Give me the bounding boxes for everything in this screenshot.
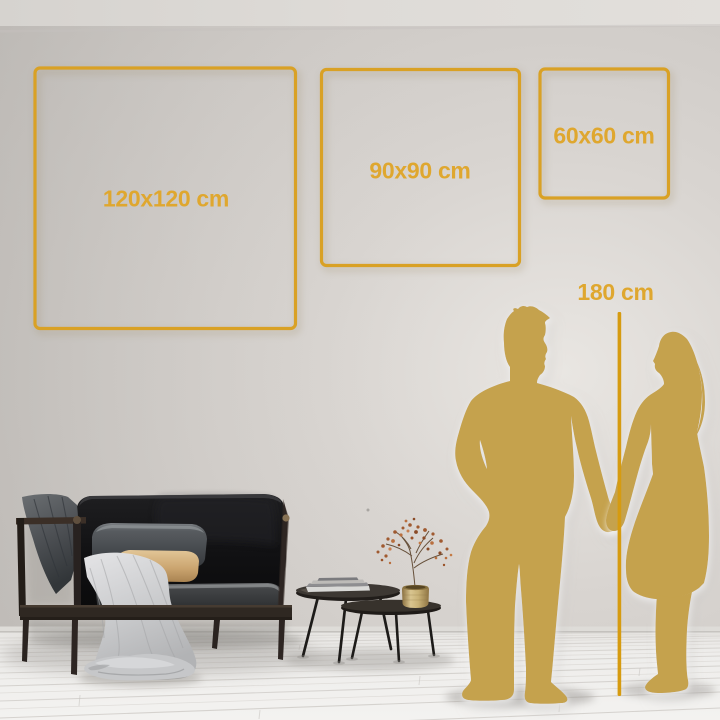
svg-text:60x60 cm: 60x60 cm [553,123,654,149]
svg-text:180 cm: 180 cm [577,279,653,305]
svg-text:120x120 cm: 120x120 cm [103,186,229,212]
svg-text:90x90 cm: 90x90 cm [369,158,470,184]
